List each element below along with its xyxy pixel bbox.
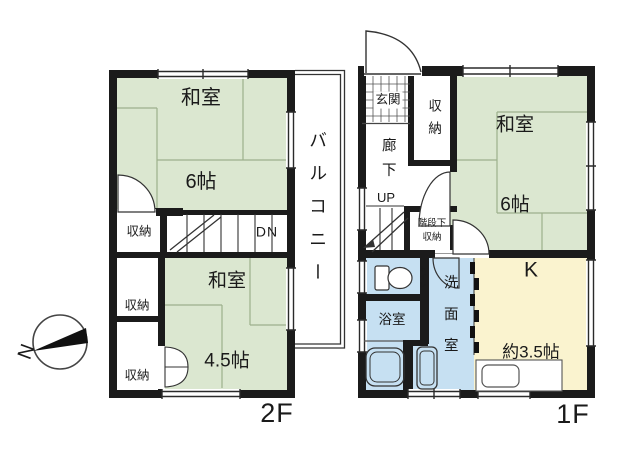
under-stair-line1: 階段下 <box>418 218 447 229</box>
toilet-label: トイレ <box>417 265 426 289</box>
stairs-up-label: UP <box>377 189 395 207</box>
hallway-label: 廊下 <box>377 138 397 187</box>
toilet-icon <box>375 266 412 290</box>
room-name: K <box>502 255 560 284</box>
room-name: 和室 <box>496 113 534 140</box>
under-stair-storage-label: 階段下収納 <box>418 217 447 245</box>
room-label-kitchen: K 約3.5帖 <box>502 199 560 420</box>
room-size: 6帖 <box>181 168 221 196</box>
floor-plan: 和室 6帖 和室 4.5帖 収納 収納 収納 DN バルコニー 2F 玄関 収納… <box>0 0 640 461</box>
entrance-label: 玄関 <box>373 92 402 109</box>
closet-label-1f: 収納 <box>424 99 442 144</box>
room-label-washitsu45-2f: 和室 4.5帖 <box>204 216 249 429</box>
room-name: 和室 <box>204 269 249 296</box>
closet-label-2f-mid: 収納 <box>126 224 151 241</box>
room-size: 約3.5帖 <box>502 341 560 365</box>
compass-icon <box>33 315 88 369</box>
floor-label-1f: 1F <box>556 396 590 432</box>
stairs-1f <box>363 206 408 252</box>
stairs-dn-label: DN <box>256 223 278 242</box>
balcony-label: バルコニー <box>305 131 329 296</box>
closet-label-2f-upper: 収納 <box>124 298 149 315</box>
washroom-label: 洗面室 <box>439 275 459 370</box>
entrance-door <box>364 31 422 76</box>
room-name: 和室 <box>181 84 221 112</box>
floor-label-2f: 2F <box>260 395 294 431</box>
room-size: 4.5帖 <box>204 349 249 376</box>
under-stair-line2: 収納 <box>422 232 441 243</box>
closet-label-2f-lower: 収納 <box>124 368 149 385</box>
bath-label: 浴室 <box>379 311 406 329</box>
